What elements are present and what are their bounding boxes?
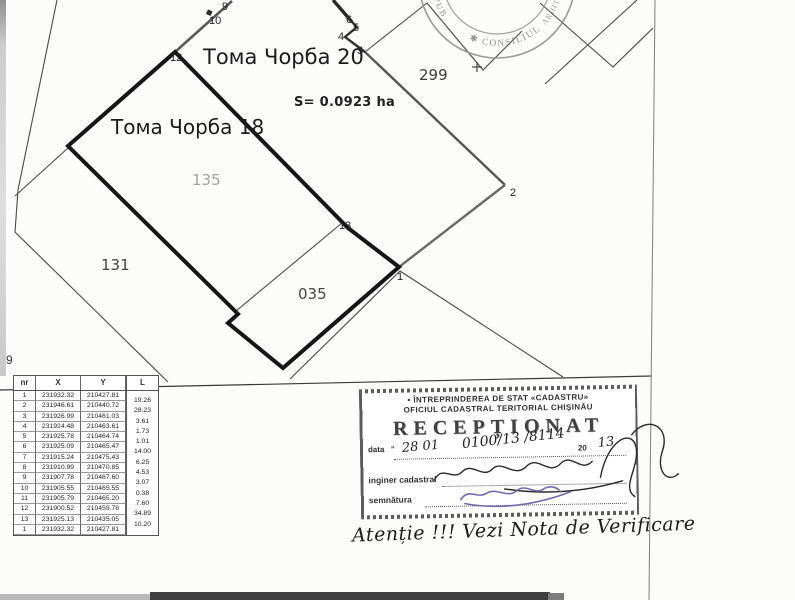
parcel-number-035: 035 [298,285,327,303]
table-cell-x: 231910.99 [36,463,81,473]
point-label-12: 12 [170,52,182,64]
point-label-2: 2 [510,187,516,199]
round-seal: REPUB ✱ CONSILIUL ARHITECT [419,0,575,58]
table-cell-x: 231915.24 [36,453,81,463]
scan-bar-dark [150,592,550,600]
table-cell-x: 231924.48 [36,422,81,432]
table-cell-y: 210464.74 [81,432,126,442]
seal-text-bottom: ✱ CONSILIUL [468,24,543,49]
table-cell-y: 210427.81 [81,391,126,401]
header-x: X [36,376,81,390]
handwritten-signatures [363,387,705,523]
table-cell-l: 0.38 [127,489,158,499]
parcel-number-299: 299 [419,66,448,84]
table-cell-x: 231926.99 [36,412,81,422]
table-cell-l: 14.00 [127,447,158,457]
table-cell-y: 210427.81 [81,525,126,535]
point-label-6: 6 [346,14,352,26]
table-cell-y: 210475.43 [81,453,126,463]
table-cell-nr: 11 [14,494,36,504]
header-y: Y [81,376,126,390]
table-cell-y: 210467.60 [81,473,126,483]
table-cell-l: 4.53 [127,468,158,478]
table-cell-y: 210435.05 [81,515,126,525]
point-label-5: 5 [353,22,359,34]
point-label-9: 9 [222,1,228,13]
parcel-number-131: 131 [101,256,130,274]
table-cell-x: 231932.32 [36,525,81,535]
director-signature [461,486,571,507]
scan-bar-light [0,594,150,600]
table-cell-x: 231905.79 [36,494,81,504]
table-cell-y: 210440.72 [81,401,126,411]
table-cell-y: 210465.47 [81,442,126,452]
street-label-18: Тома Чорба 18 [111,115,264,139]
table-cell-x: 231925.13 [36,515,81,525]
reception-stamp: • ÎNTREPRINDEREA DE STAT «CADASTRU» OFIC… [359,385,639,520]
table-cell-l: 1.01 [127,437,158,447]
area-label: S= 0.0923 ha [294,95,395,110]
table-cell-y: 210461.03 [81,412,126,422]
table-cell-l: 3.07 [127,478,158,488]
table-cell-y: 210463.61 [81,422,126,432]
length-values: 19.2628.233.611.731.0114.006.254.533.070… [127,391,158,530]
table-cell-y: 210465.55 [81,484,126,494]
table-cell-nr: 1 [14,525,36,535]
table-cell-nr: 1 [14,391,36,401]
header-nr: nr [14,376,36,390]
seal-text-right: ARHITECT [540,0,565,27]
table-cell-l: 28.23 [127,406,158,416]
point-label-10: 10 [209,15,221,27]
table-cell-y: 210465.20 [81,494,126,504]
coordinates-table: nr X Y 1231932.32210427.812231946.612104… [13,375,159,536]
table-cell-l: 19.26 [127,396,158,406]
table-cell-y: 210459.78 [81,504,126,514]
coords-rows: 1231932.32210427.812231946.61210440.7232… [14,391,126,535]
table-cell-l: 34.89 [127,509,158,519]
table-cell-x: 231932.32 [36,391,81,401]
table-cell-x: 231900.52 [36,504,81,514]
table-cell-nr: 4 [14,422,36,432]
table-cell-l: 7.60 [127,499,158,509]
svg-text:✱ CONSILIUL: ✱ CONSILIUL [468,24,543,49]
svg-text:ARHITECT: ARHITECT [540,0,565,27]
table-cell-nr: 2 [14,401,36,411]
table-cell-nr: 9 [14,473,36,483]
table-cell-nr: 7 [14,453,36,463]
table-cell-l: 10.20 [127,520,158,530]
table-cell-x: 231925.09 [36,442,81,452]
point-label-3: 3 [357,45,363,57]
point-label-13: 13 [339,220,351,232]
scan-bar-mid [548,593,564,600]
scan-edge-left [0,0,6,376]
header-l: L [127,376,158,391]
table-cell-l: 3.61 [127,417,158,427]
table-cell-nr: 13 [14,515,36,525]
table-cell-l: 6.25 [127,458,158,468]
street-label-20: Тома Чорба 20 [203,45,364,69]
table-cell-x: 231946.61 [36,401,81,411]
table-cell-y: 210470.85 [81,463,126,473]
table-cell-x: 231925.78 [36,432,81,442]
table-cell-nr: 6 [14,442,36,452]
table-cell-nr: 10 [14,484,36,494]
survey-cross-mark [472,62,482,72]
table-header-row: nr X Y [14,376,126,391]
table-cell-nr: 5 [14,432,36,442]
table-cell-nr: 12 [14,504,36,514]
table-cell-x: 231905.55 [36,484,81,494]
point-label-4: 4 [338,31,344,43]
parcel-number-135: 135 [192,171,221,189]
table-cell-nr: 8 [14,463,36,473]
table-cell-nr: 3 [14,412,36,422]
margin-point-label: 9 [6,353,13,367]
point-label-1: 1 [397,271,403,283]
cadastral-plan-document: REPUB ✱ CONSILIUL ARHITECT Тома Чорба 20… [0,0,795,600]
table-cell-x: 231907.78 [36,473,81,483]
table-cell-l: 1.73 [127,427,158,437]
